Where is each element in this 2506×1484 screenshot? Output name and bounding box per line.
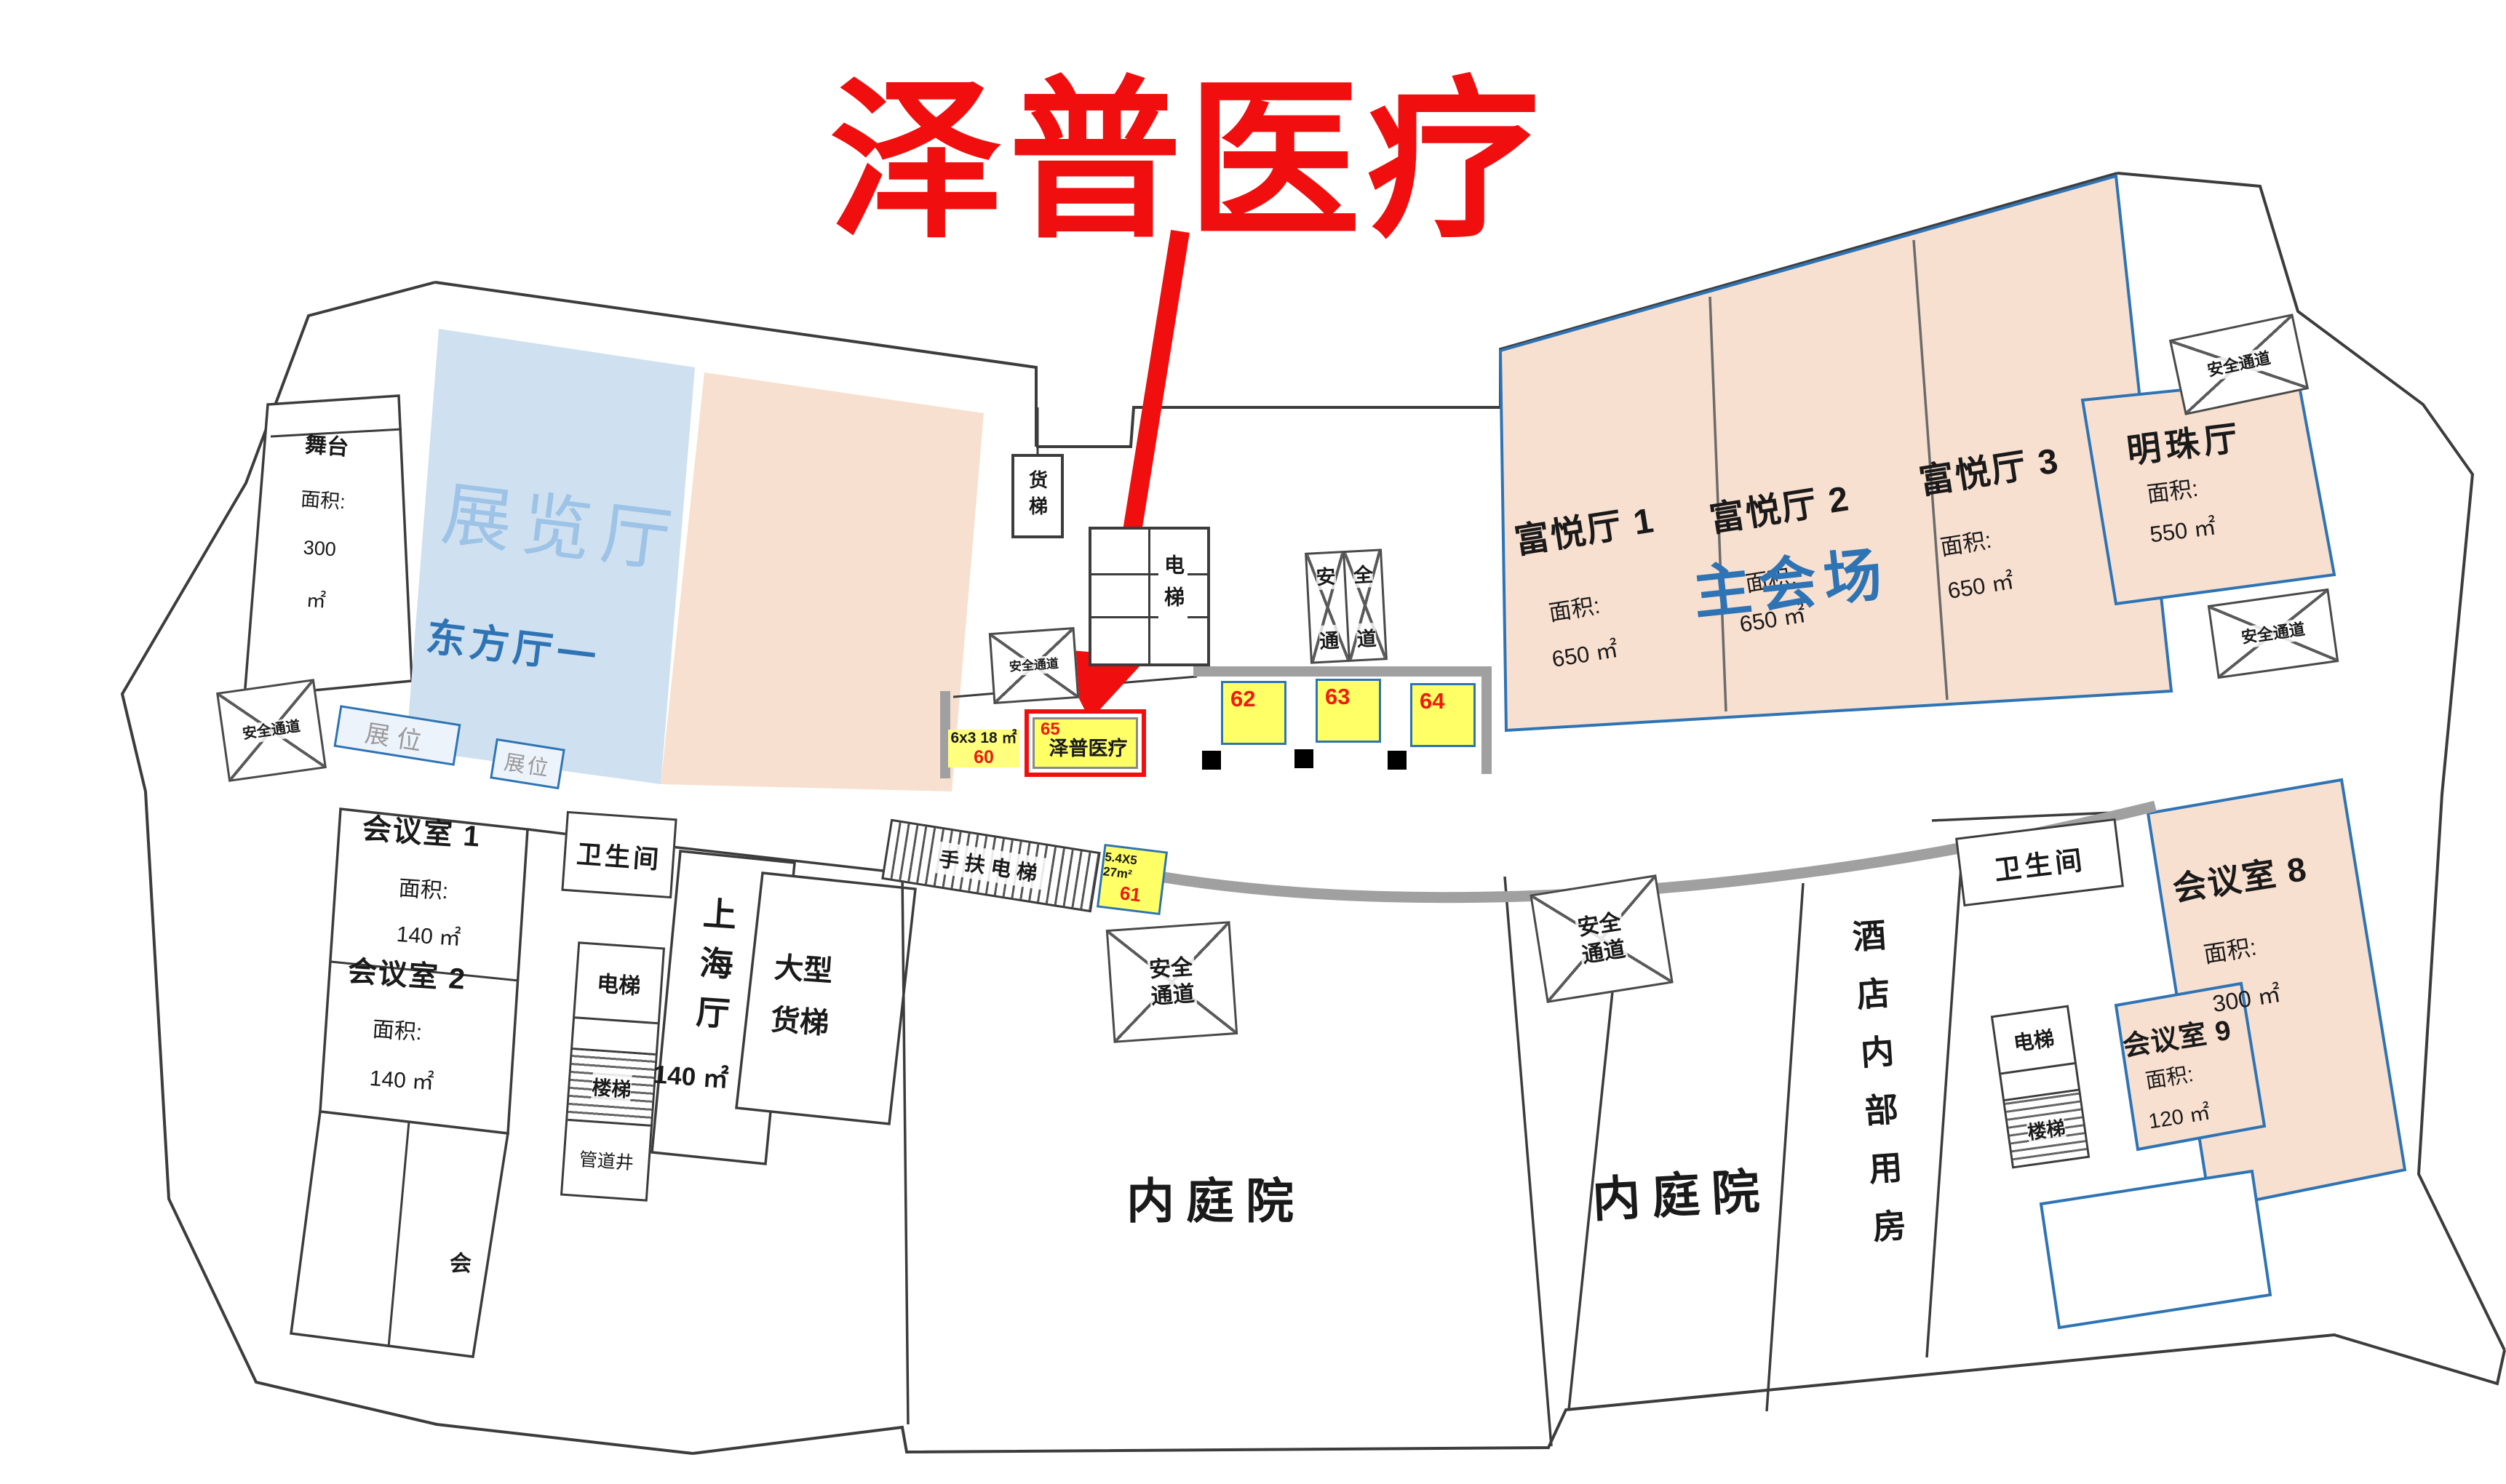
safety-center-line2: 通道 bbox=[1150, 981, 1196, 1011]
booth-62-number: 62 bbox=[1223, 683, 1284, 710]
mingzhu-hall-outline bbox=[2083, 378, 2334, 604]
restroom-right-label: 卫生间 bbox=[1992, 837, 2088, 887]
stage-name: 舞台 bbox=[304, 426, 350, 461]
safety-passage-box-mid: 安全通道 bbox=[989, 627, 1080, 704]
elevator-left-cell: 电梯 bbox=[575, 944, 663, 1024]
stairs-left-cell: 楼梯 bbox=[568, 1050, 656, 1127]
elevator-right-cell: 电梯 bbox=[1993, 1008, 2075, 1074]
meeting1-area-label: 面积: bbox=[398, 870, 450, 906]
elevator-core-mid-label: 电梯 bbox=[1158, 554, 1188, 618]
safety-passage-center-label: 安全 通道 bbox=[1147, 952, 1197, 1011]
safety-passage-box-double: 安 通 全 道 bbox=[1305, 548, 1388, 663]
pipe-shaft-label: 管道井 bbox=[578, 1145, 635, 1175]
booth-60-number: 60 bbox=[974, 747, 994, 768]
wall-bottom bbox=[693, 1335, 2505, 1453]
safety-double-cell-left: 安 通 bbox=[1307, 553, 1348, 661]
meeting2-name: 会议室 2 bbox=[346, 947, 468, 997]
safety-passage-mid-label: 安全通道 bbox=[1007, 655, 1060, 676]
meeting2-area: 140 ㎡ bbox=[369, 1060, 435, 1096]
booth-65-company: 泽普医疗 bbox=[1041, 738, 1136, 759]
safety-char-tong: 通 bbox=[1318, 625, 1340, 654]
meeting1-name: 会议室 1 bbox=[361, 805, 482, 855]
safety-passage-courtyard2-label: 安全 通道 bbox=[1574, 907, 1628, 970]
booth-65-highlight: 65 泽普医疗 bbox=[1025, 709, 1146, 777]
booth-65-number: 65 bbox=[1041, 720, 1136, 738]
partial-room-label: 会 bbox=[450, 1245, 472, 1277]
restroom-left-label: 卫生间 bbox=[576, 833, 663, 876]
booth-62: 62 bbox=[1221, 681, 1286, 745]
booth-64-number: 64 bbox=[1412, 685, 1473, 712]
large-freight-line1: 大型 bbox=[773, 944, 835, 989]
stairs-right-cell: 楼梯 bbox=[2005, 1091, 2088, 1166]
safety-char-quan: 全 bbox=[1353, 559, 1374, 588]
stairs-left-label: 楼梯 bbox=[591, 1072, 632, 1103]
booth-slot-1-label: 展位 bbox=[363, 713, 432, 758]
stage-area-unit: ㎡ bbox=[306, 584, 327, 614]
elevator-left-label: 电梯 bbox=[596, 965, 642, 1000]
pillar-2 bbox=[1294, 749, 1313, 768]
booth-64: 64 bbox=[1410, 683, 1476, 747]
corridor-bar-vertical bbox=[1481, 666, 1492, 774]
meeting1-area: 140 ㎡ bbox=[396, 916, 462, 952]
booth-60: 6x3 18 ㎡ 60 bbox=[948, 730, 1019, 767]
stage-label-group: 舞台 面积: 300 ㎡ bbox=[279, 426, 365, 615]
pipe-shaft-cell: 管道井 bbox=[562, 1121, 651, 1200]
booth-slot-2-label: 展位 bbox=[502, 745, 553, 782]
safety-char-dao: 道 bbox=[1356, 623, 1377, 652]
freight-elevator-label: 货梯 bbox=[1025, 470, 1051, 522]
booth-61: 5.4X5 27m² 61 bbox=[1097, 844, 1168, 915]
safety-passage-left-label: 安全通道 bbox=[240, 717, 303, 744]
mingzhu-area-label: 面积: bbox=[2145, 470, 2200, 508]
corridor-bar-top bbox=[1193, 666, 1492, 677]
elevator-stairs-core-left: 电梯 楼梯 管道井 bbox=[560, 941, 665, 1202]
white-room-bottom-right bbox=[2041, 1171, 2270, 1328]
large-freight-label-group: 大型 货梯 bbox=[770, 944, 835, 1042]
safety-char-an: 安 bbox=[1315, 561, 1336, 590]
safety-center-line1: 安全 bbox=[1148, 953, 1193, 984]
booth-61-number: 61 bbox=[1118, 882, 1142, 906]
peach-hall-shape bbox=[661, 372, 984, 791]
safety-passage-box-left: 安全通道 bbox=[216, 679, 327, 782]
stage-area-label: 面积: bbox=[300, 483, 346, 514]
booth-65: 65 泽普医疗 bbox=[1033, 717, 1138, 769]
safety-passage-right-mid-label: 安全通道 bbox=[2238, 618, 2307, 649]
stairs-right-label: 楼梯 bbox=[2026, 1112, 2067, 1144]
escalator-label: 手扶电梯 bbox=[933, 841, 1050, 890]
elevator-core-mid: 电梯 bbox=[1089, 527, 1210, 666]
booth-63: 63 bbox=[1316, 679, 1381, 743]
freight-elevator-room: 货梯 bbox=[1011, 454, 1064, 538]
pillar-1 bbox=[1202, 751, 1221, 770]
safety-passage-box-courtyard2: 安全 通道 bbox=[1530, 874, 1673, 1003]
meeting2-area-label: 面积: bbox=[372, 1011, 423, 1047]
pillar-3 bbox=[1388, 751, 1407, 770]
annotation-title: 泽普医疗 bbox=[830, 20, 1546, 271]
safety-double-cell-right: 全 道 bbox=[1342, 551, 1385, 659]
large-freight-line2: 货梯 bbox=[770, 996, 831, 1042]
hotel-column-right-wall bbox=[1927, 867, 1961, 1357]
hotel-column-left-wall bbox=[1767, 883, 1803, 1411]
shanghai-hall-area: 140 ㎡ bbox=[652, 1053, 729, 1096]
booth-63-number: 63 bbox=[1318, 681, 1379, 708]
booth-61-size: 5.4X5 27m² bbox=[1102, 850, 1165, 886]
restroom-left: 卫生间 bbox=[561, 811, 677, 898]
safety-passage-box-center: 安全 通道 bbox=[1106, 921, 1238, 1043]
courtyard1-label: 内庭院 bbox=[1126, 1162, 1305, 1232]
safety-passage-top-right-label: 安全通道 bbox=[2204, 347, 2274, 382]
elevator-right-label: 电梯 bbox=[2011, 1023, 2056, 1057]
stage-area-value: 300 bbox=[303, 536, 337, 561]
courtyard2-label: 内庭院 bbox=[1591, 1152, 1773, 1232]
booth-60-size: 6x3 18 ㎡ bbox=[950, 730, 1017, 747]
floorplan-page: { "annotation": { "title": "泽普医疗", "titl… bbox=[0, 0, 2506, 1484]
